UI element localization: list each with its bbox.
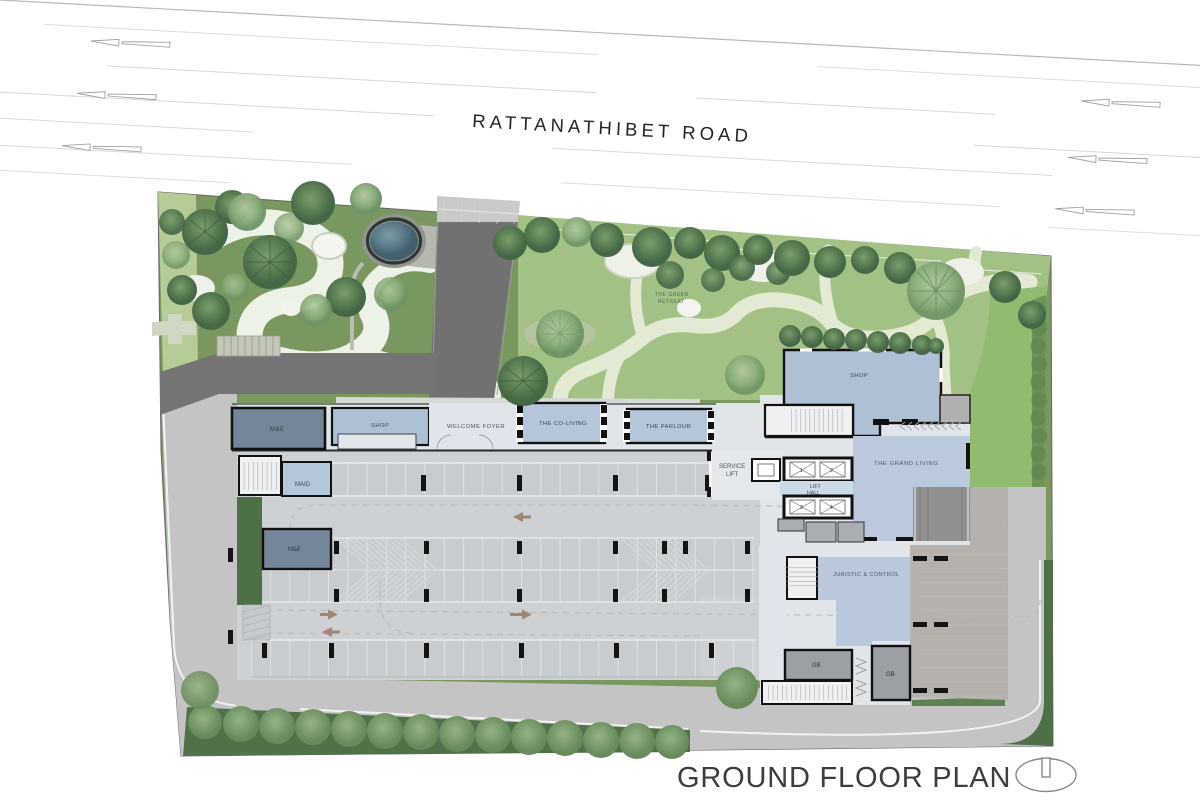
- svg-text:2: 2: [830, 468, 833, 474]
- svg-text:GB: GB: [812, 663, 821, 669]
- svg-text:3: 3: [800, 505, 803, 511]
- svg-text:SHOP: SHOP: [371, 423, 389, 429]
- svg-text:LIFT: LIFT: [726, 472, 739, 478]
- svg-text:LIFT: LIFT: [810, 484, 821, 490]
- svg-text:4: 4: [830, 505, 833, 511]
- svg-text:SERVICE: SERVICE: [719, 464, 745, 470]
- svg-text:GB: GB: [886, 672, 895, 678]
- svg-text:WELCOME FOYER: WELCOME FOYER: [447, 424, 505, 430]
- svg-text:JURISTIC & CONTROL: JURISTIC & CONTROL: [833, 572, 900, 578]
- svg-text:THE GRAND LIVING: THE GRAND LIVING: [874, 461, 938, 467]
- svg-text:M&E: M&E: [270, 427, 285, 433]
- svg-text:GROUND FLOOR PLAN: GROUND FLOOR PLAN: [677, 762, 1011, 794]
- svg-text:1: 1: [800, 468, 803, 474]
- svg-text:THE CO-LIVING: THE CO-LIVING: [539, 421, 587, 427]
- svg-text:MAID: MAID: [295, 482, 311, 488]
- svg-text:M&E: M&E: [288, 547, 301, 553]
- svg-text:THE GREEN: THE GREEN: [655, 292, 689, 298]
- svg-text:THE PARLOUR: THE PARLOUR: [646, 424, 691, 430]
- svg-text:RETREAT: RETREAT: [658, 299, 684, 305]
